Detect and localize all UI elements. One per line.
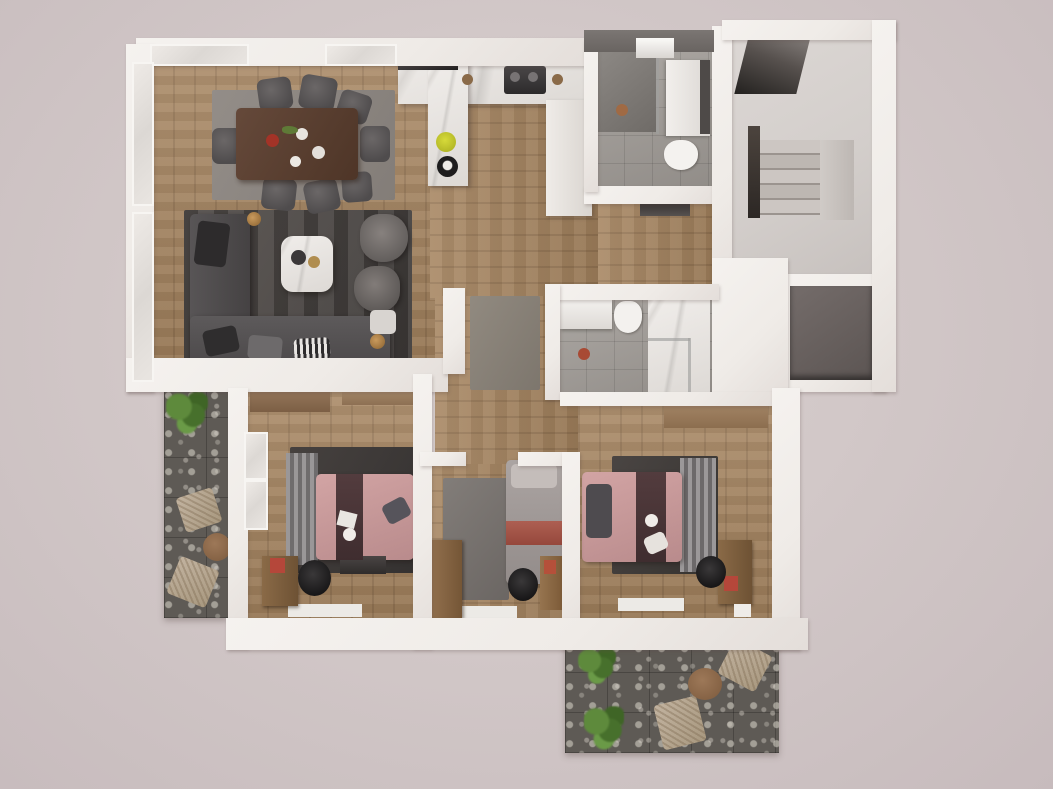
shower-area xyxy=(598,52,656,132)
floor-plan-render xyxy=(0,0,1053,789)
wall-stairwell-top xyxy=(722,20,896,40)
striped-gray-rug xyxy=(680,458,716,572)
plate xyxy=(290,156,301,167)
red-poster xyxy=(270,558,285,573)
wall-bedroom2-top xyxy=(560,392,776,406)
wall-middleroom-top-left xyxy=(420,452,466,466)
toilet xyxy=(664,140,698,170)
dining-chair xyxy=(297,73,338,113)
wall-stairwell-right xyxy=(872,20,896,392)
armchair xyxy=(354,266,400,312)
bedroom1-window-panel xyxy=(244,432,268,480)
window-top-left xyxy=(150,44,249,66)
dining-chair xyxy=(260,176,297,211)
mirror-cabinet xyxy=(700,60,710,134)
coffee-maker xyxy=(437,156,458,177)
kitchen-decor xyxy=(462,74,473,85)
shower-glass xyxy=(688,338,691,394)
herb-sprig xyxy=(282,126,298,134)
gold-decor xyxy=(308,256,320,268)
bed-red-stripe xyxy=(506,521,563,545)
wall-bedrooms-bottom xyxy=(226,618,808,650)
kitchen-decor xyxy=(552,74,563,85)
wall-landing-block xyxy=(712,258,788,394)
stair-rail xyxy=(748,126,760,218)
dining-chair xyxy=(256,76,294,112)
small-white-box xyxy=(734,604,751,617)
bath-decor xyxy=(616,104,628,116)
white-floor-mat xyxy=(288,604,362,617)
wall-bathroom2-left xyxy=(545,284,560,400)
marble-shower xyxy=(648,299,710,395)
floor-lamp xyxy=(247,212,261,226)
red-bowl xyxy=(266,134,279,147)
balcony-round-table xyxy=(203,533,231,561)
wall-bathroom1-bottom xyxy=(584,186,716,204)
wardrobe xyxy=(250,390,330,412)
wall-living-hall xyxy=(443,288,465,374)
headboard-throw xyxy=(286,453,318,565)
window-left-upper xyxy=(132,62,154,206)
bedroom1-window-panel xyxy=(244,480,268,530)
shower-glass xyxy=(656,52,659,134)
wall-bathroom2-top xyxy=(545,284,719,300)
terrace-plant xyxy=(578,648,616,684)
wall-bedroom2-right xyxy=(772,388,800,650)
yellow-kettle xyxy=(436,132,456,152)
wall-living-bottom xyxy=(126,358,448,392)
skylight xyxy=(636,38,674,58)
bed2-dark-pillow xyxy=(586,484,612,538)
balcony-plant xyxy=(166,392,208,434)
bed-pillow xyxy=(511,464,557,488)
floor-lamp xyxy=(370,334,385,349)
elevator-cab xyxy=(790,286,872,380)
hall-runner-rug xyxy=(470,296,540,390)
shower-glass xyxy=(648,338,690,341)
plate xyxy=(312,146,325,159)
side-table xyxy=(370,310,396,334)
red-poster xyxy=(544,560,556,574)
terrace-plant xyxy=(584,706,624,750)
dining-table xyxy=(236,108,358,180)
coffee-table xyxy=(281,236,333,292)
office-chair xyxy=(298,560,331,596)
window-top-right xyxy=(325,44,397,66)
stair-landing-wall xyxy=(820,140,854,220)
stair-treads xyxy=(758,140,820,220)
desk-chair xyxy=(508,568,538,601)
bathroom2-vanity xyxy=(560,299,612,329)
toilet xyxy=(614,301,642,333)
bath-decor-red xyxy=(578,348,590,360)
dining-chair xyxy=(360,126,390,162)
armchair xyxy=(360,214,408,262)
white-floor-mat xyxy=(618,598,684,611)
dark-throw-blanket xyxy=(193,220,230,268)
hob-burner xyxy=(510,72,520,82)
bed-decor xyxy=(343,528,356,541)
red-poster xyxy=(724,576,738,591)
hob-burner xyxy=(528,72,538,82)
wall-bedroom1-hall xyxy=(413,374,432,648)
middle-room-wardrobe xyxy=(432,540,462,618)
wall-bathroom1-left xyxy=(584,40,598,192)
decor-bowl xyxy=(291,250,306,265)
office-chair xyxy=(696,556,726,588)
bed-decor xyxy=(645,514,658,527)
white-floor-mat xyxy=(455,606,517,618)
entry-door-threshold xyxy=(640,204,690,216)
window-left-lower xyxy=(132,212,154,382)
